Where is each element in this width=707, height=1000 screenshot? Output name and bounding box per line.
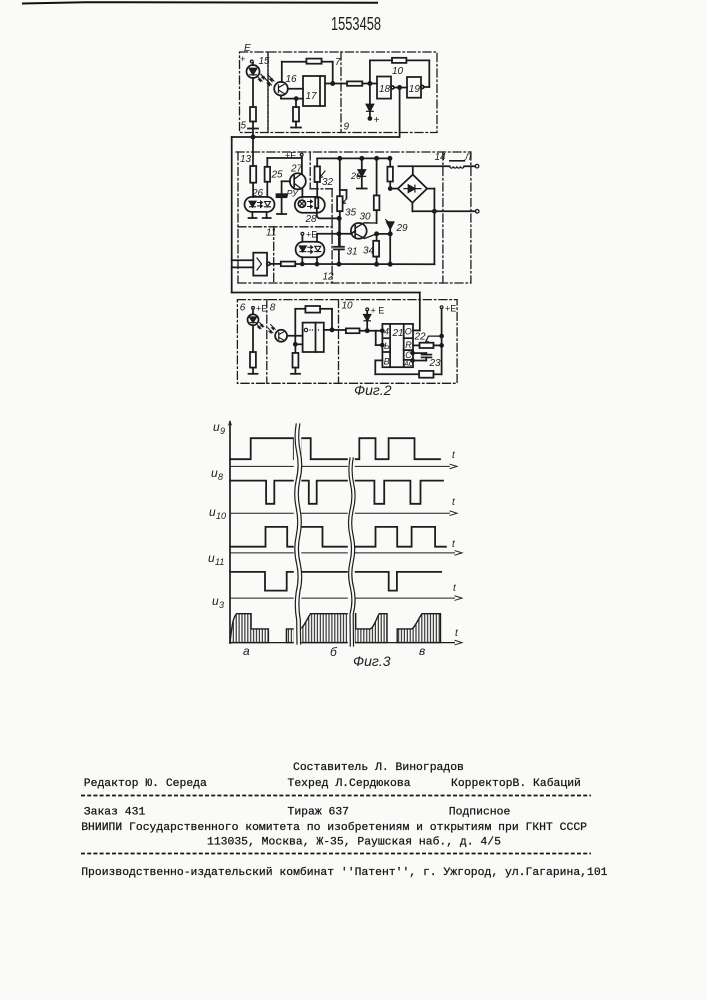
svg-text:u: u: [211, 466, 218, 480]
svg-text:30: 30: [360, 212, 372, 223]
svg-text:21: 21: [392, 328, 404, 339]
svg-text:u: u: [212, 594, 219, 608]
svg-text:t: t: [453, 583, 457, 594]
svg-text:26: 26: [350, 171, 361, 181]
svg-text:113035, Москва, Ж-35, Раушская: 113035, Москва, Ж-35, Раушская наб., д. …: [207, 836, 501, 849]
svg-text:Редактор Ю. Середа: Редактор Ю. Середа: [84, 778, 207, 790]
svg-text:Фиг.3: Фиг.3: [353, 653, 391, 669]
svg-text:t: t: [452, 450, 456, 461]
svg-text:8: 8: [270, 303, 276, 314]
svg-text:t: t: [452, 539, 456, 550]
svg-text:17: 17: [306, 91, 318, 102]
svg-text:в: в: [419, 644, 425, 658]
svg-text:t: t: [455, 628, 459, 639]
svg-text:15: 15: [259, 56, 271, 67]
svg-text:35: 35: [345, 208, 357, 219]
svg-text:О: О: [405, 327, 412, 337]
svg-text:23: 23: [429, 358, 442, 369]
svg-text:u: u: [208, 551, 215, 565]
svg-text:4: 4: [384, 327, 389, 337]
svg-text:+: +: [240, 54, 245, 64]
svg-text:+E: +E: [256, 304, 267, 314]
svg-text:+: +: [374, 115, 380, 126]
svg-text:27: 27: [290, 164, 303, 175]
svg-text:12: 12: [323, 272, 335, 283]
svg-text:28: 28: [305, 214, 318, 225]
svg-text:32: 32: [322, 177, 334, 188]
svg-text:18: 18: [379, 84, 391, 95]
svg-text:1553458: 1553458: [331, 14, 381, 34]
svg-text:В: В: [384, 357, 390, 367]
svg-text:Ь: Ь: [384, 341, 390, 351]
svg-text:9: 9: [220, 426, 225, 436]
svg-text:u: u: [209, 505, 216, 519]
svg-text:34: 34: [363, 246, 375, 257]
svg-text:14: 14: [435, 152, 447, 163]
svg-text:25: 25: [271, 170, 284, 181]
svg-text:u: u: [213, 420, 220, 434]
svg-text:ВНИИПИ Государственного комите: ВНИИПИ Государственного комитета по изоб…: [81, 821, 587, 834]
svg-text:3: 3: [219, 600, 224, 610]
svg-text:31: 31: [347, 247, 358, 258]
svg-text:9: 9: [344, 122, 350, 133]
svg-text:19: 19: [409, 84, 421, 95]
svg-text:26: 26: [251, 188, 264, 199]
svg-text:Подписное: Подписное: [449, 807, 511, 819]
svg-text:11: 11: [266, 228, 276, 239]
svg-text:Составитель Л. Виноградов: Составитель Л. Виноградов: [293, 762, 464, 774]
svg-text:+E: +E: [306, 230, 317, 240]
svg-text:а: а: [243, 644, 250, 658]
svg-text:16: 16: [286, 74, 298, 85]
svg-text:+Е: +Е: [445, 304, 456, 314]
svg-text:8: 8: [218, 472, 223, 482]
svg-text:5: 5: [241, 121, 247, 132]
svg-text:6: 6: [240, 303, 246, 314]
svg-text:Производственно-издательский к: Производственно-издательский комбинат ''…: [81, 866, 607, 879]
svg-text:t: t: [452, 497, 456, 508]
svg-text:б: б: [330, 645, 338, 659]
svg-text:+ Е: + Е: [371, 306, 385, 316]
svg-text:Фиг.2: Фиг.2: [354, 382, 392, 398]
svg-text:E: E: [244, 43, 251, 54]
svg-text:Техред Л.Сердюкова: Техред Л.Сердюкова: [288, 778, 411, 790]
svg-text:R: R: [405, 340, 412, 350]
svg-text:22: 22: [414, 332, 427, 343]
svg-text:РУ: РУ: [287, 189, 300, 199]
svg-text:10: 10: [392, 66, 404, 77]
svg-text:7: 7: [335, 57, 341, 68]
svg-text:11: 11: [215, 557, 224, 567]
svg-text:+E: +E: [285, 151, 296, 161]
svg-text:Тираж 637: Тираж 637: [288, 807, 350, 819]
svg-text:КорректорВ. Кабаций: КорректорВ. Кабаций: [451, 777, 581, 790]
svg-text:13: 13: [240, 154, 252, 165]
svg-text:Л: Л: [464, 152, 472, 162]
svg-text:Заказ 431: Заказ 431: [84, 807, 146, 819]
svg-text:10: 10: [342, 301, 354, 312]
svg-text:10: 10: [216, 511, 226, 521]
svg-text:29: 29: [396, 223, 409, 234]
